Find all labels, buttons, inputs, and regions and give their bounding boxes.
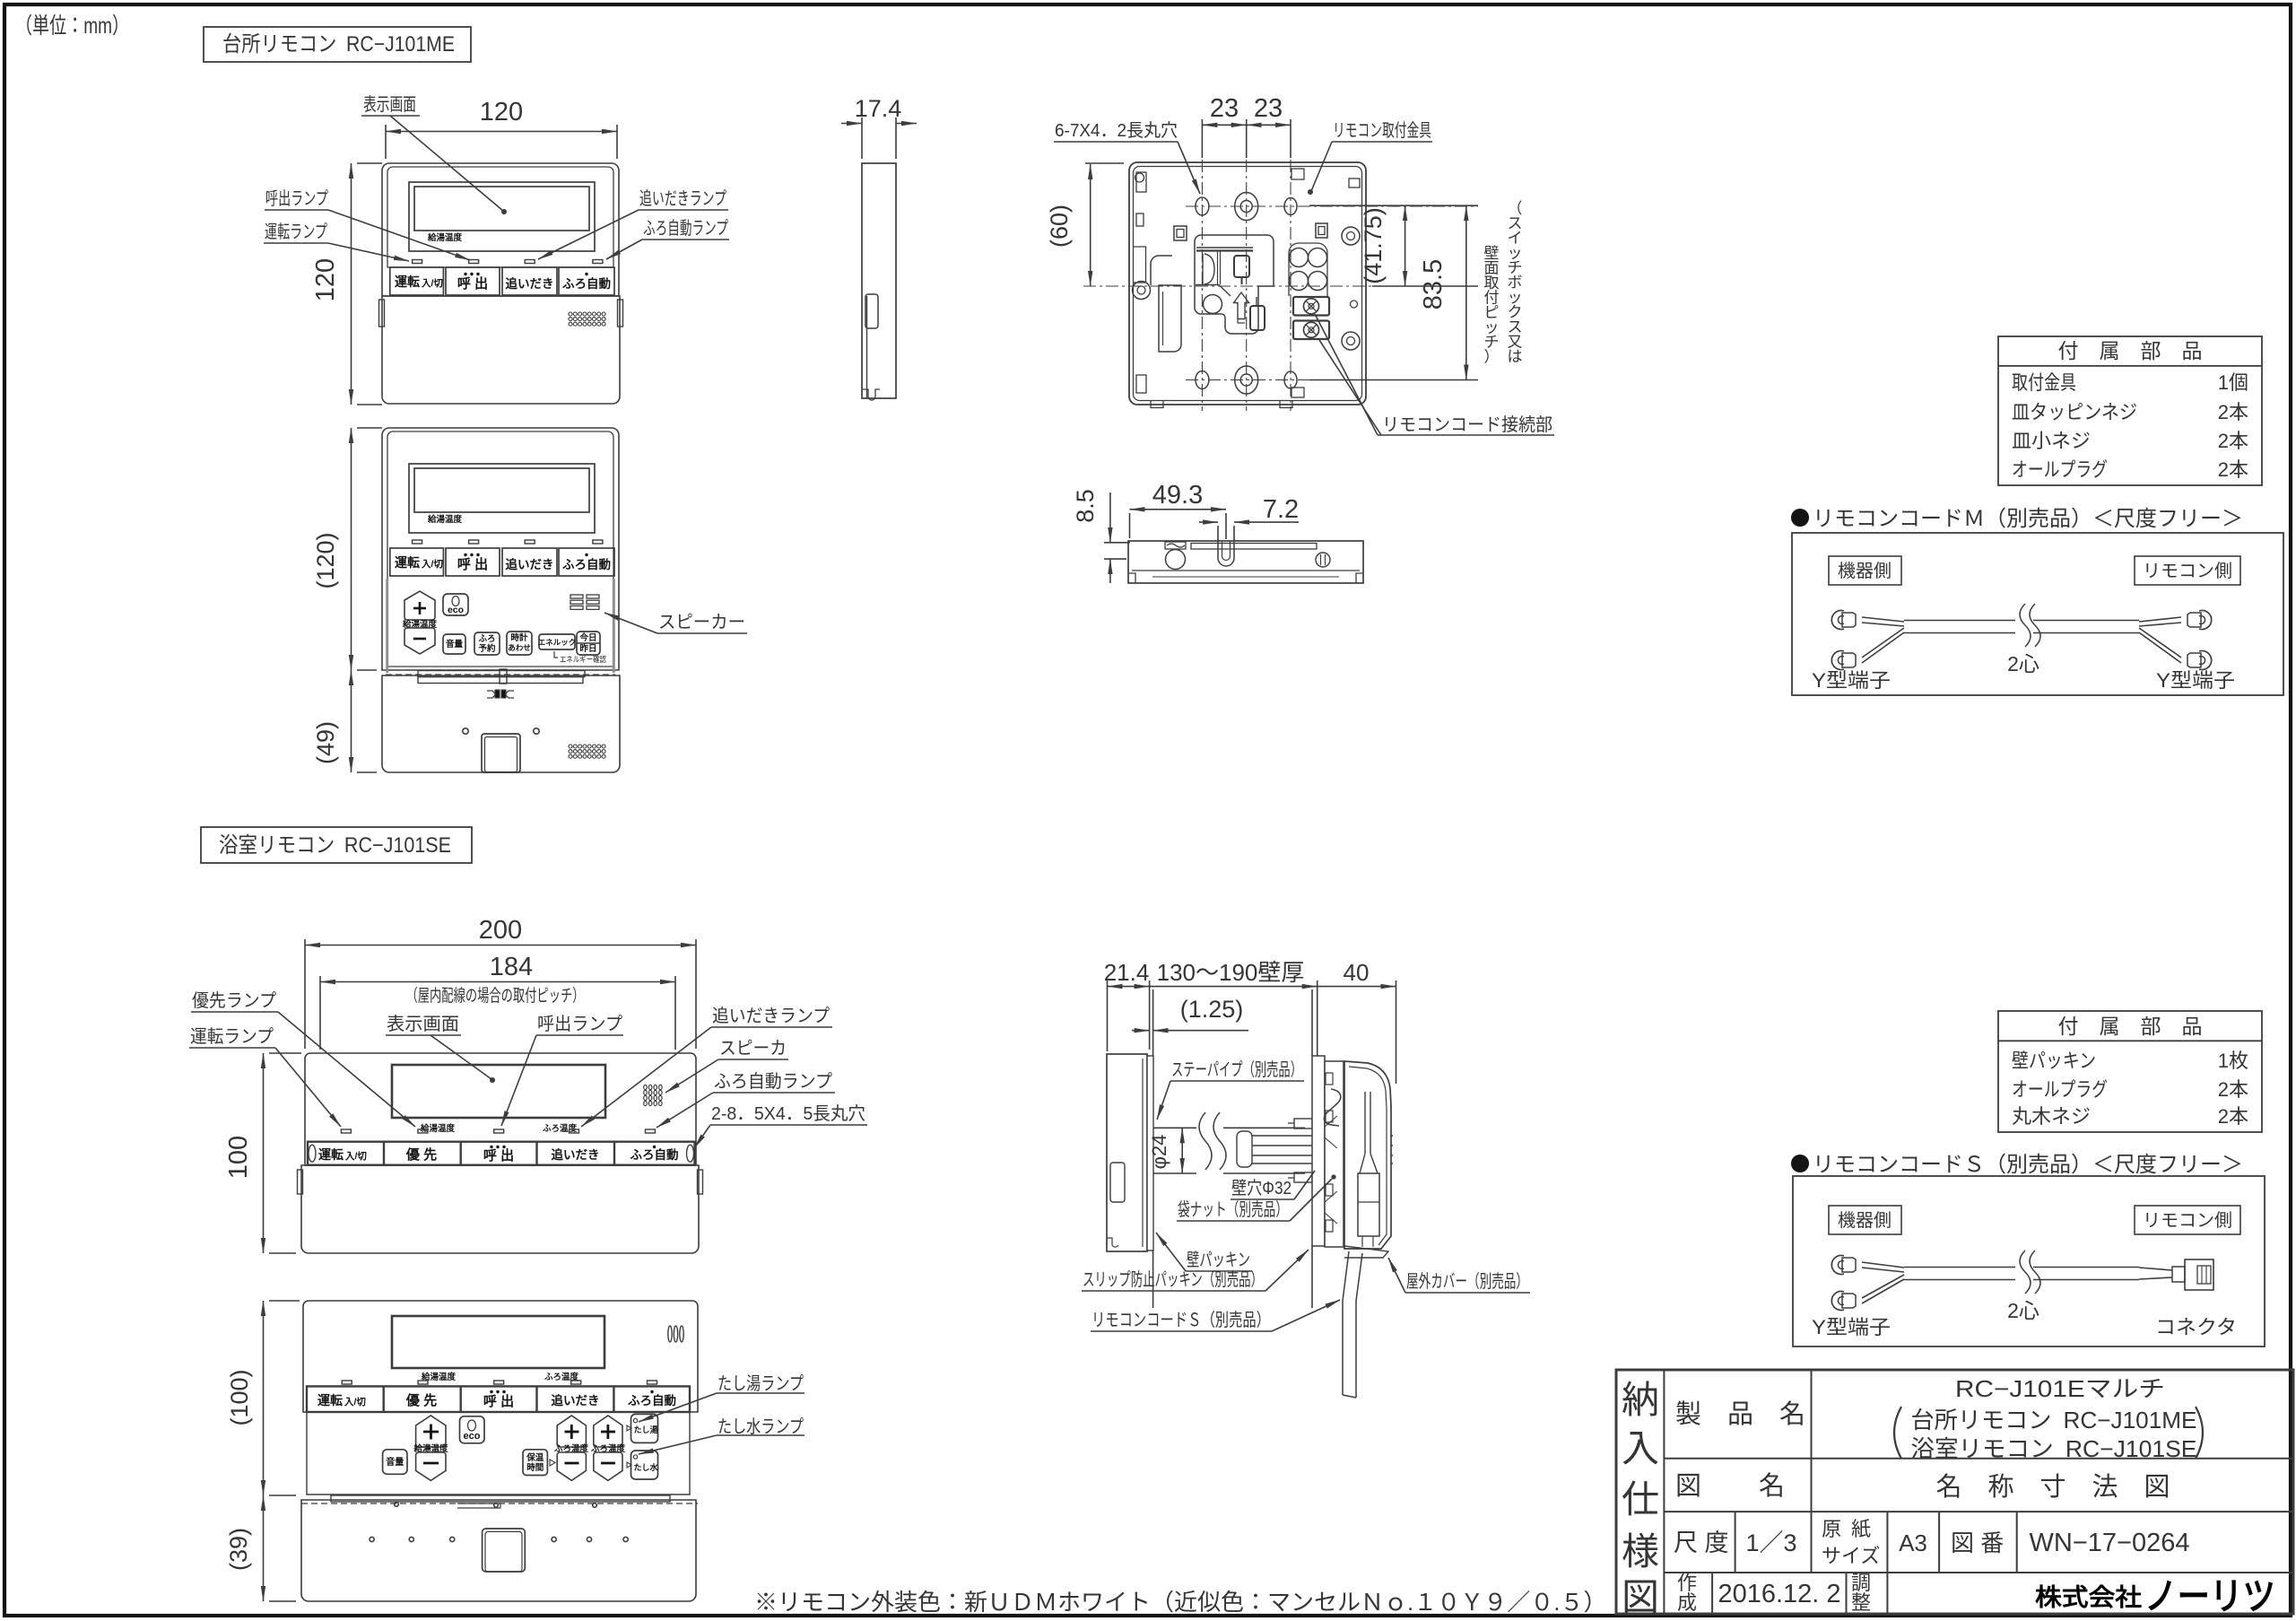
- svg-text:取付金具: 取付金具: [2012, 371, 2076, 394]
- svg-text:エネルック: エネルック: [538, 638, 577, 647]
- svg-text:エネルギー確認: エネルギー確認: [560, 655, 606, 664]
- svg-text:リモコンコード接続部: リモコンコード接続部: [1382, 414, 1552, 435]
- svg-text:ふろ自動ランプ: ふろ自動ランプ: [714, 1071, 832, 1092]
- svg-text:付 属 部 品: 付 属 部 品: [2058, 339, 2203, 362]
- svg-text:2本: 2本: [2218, 1078, 2248, 1101]
- svg-text:追いだきランプ: 追いだきランプ: [712, 1006, 830, 1026]
- svg-text:120: 120: [480, 98, 523, 126]
- svg-text:図: 図: [1622, 1576, 1659, 1618]
- svg-text:納: 納: [1622, 1379, 1659, 1421]
- svg-text:23: 23: [1254, 94, 1283, 123]
- svg-text:壁パッキン: 壁パッキン: [2012, 1050, 2096, 1072]
- svg-text:たし湯: たし湯: [633, 1425, 657, 1434]
- svg-text:スピーカ: スピーカ: [719, 1039, 787, 1059]
- svg-text:リモコンコードＳ（別売品）: リモコンコードＳ（別売品）: [1091, 1310, 1270, 1330]
- svg-text:2本: 2本: [2218, 430, 2248, 452]
- svg-text:Y型端子: Y型端子: [1812, 669, 1891, 692]
- svg-text:運転ランプ: 運転ランプ: [190, 1026, 274, 1047]
- svg-text:6-7X4．2長丸穴: 6-7X4．2長丸穴: [1055, 120, 1178, 141]
- svg-text:表示画面: 表示画面: [363, 94, 416, 115]
- svg-text:eco: eco: [464, 1431, 481, 1442]
- svg-text:株式会社: 株式会社: [2035, 1584, 2142, 1611]
- svg-text:皿タッピンネジ: 皿タッピンネジ: [2012, 401, 2137, 423]
- svg-text:たし水: たし水: [633, 1462, 658, 1472]
- svg-text:ふろ自動: ふろ自動: [631, 1147, 679, 1162]
- svg-text:スピーカー: スピーカー: [658, 613, 745, 632]
- svg-text:製 品 名: 製 品 名: [1675, 1399, 1805, 1429]
- svg-text:運転: 運転: [317, 1393, 343, 1407]
- svg-text:音量: 音量: [446, 639, 464, 649]
- svg-text:丸木ネジ: 丸木ネジ: [2012, 1105, 2091, 1128]
- svg-text:たし湯ランプ: たし湯ランプ: [717, 1373, 804, 1394]
- svg-text:オールプラグ: オールプラグ: [2012, 1078, 2108, 1101]
- svg-text:優 先: 優 先: [405, 1392, 437, 1408]
- svg-text:呼 出: 呼 出: [457, 556, 488, 572]
- svg-text:リモコンコードＭ（別売品）＜尺度フリー＞: リモコンコードＭ（別売品）＜尺度フリー＞: [1813, 507, 2243, 531]
- svg-text:名: 名: [1759, 1471, 1785, 1501]
- svg-text:呼出ランプ: 呼出ランプ: [265, 188, 328, 209]
- svg-text:ふろ自動ランプ: ふろ自動ランプ: [643, 218, 728, 239]
- svg-text:保温: 保温: [526, 1452, 544, 1463]
- svg-text:184: 184: [490, 953, 533, 981]
- svg-text:追いだきランプ: 追いだきランプ: [639, 188, 726, 209]
- svg-text:追いだき: 追いだき: [506, 276, 554, 291]
- svg-text:機器側: 機器側: [1838, 561, 1892, 581]
- svg-text:(1.25): (1.25): [1180, 996, 1244, 1023]
- svg-text:リモコンコードＳ（別売品）＜尺度フリー＞: リモコンコードＳ（別売品）＜尺度フリー＞: [1813, 1153, 2243, 1177]
- svg-text:追いだき: 追いだき: [552, 1147, 600, 1162]
- svg-text:7.2: 7.2: [1263, 495, 1299, 524]
- svg-text:様: 様: [1622, 1530, 1659, 1573]
- svg-text:サイズ: サイズ: [1822, 1545, 1880, 1567]
- svg-text:120: 120: [311, 258, 340, 301]
- svg-text:49.3: 49.3: [1152, 481, 1203, 510]
- svg-text:100: 100: [224, 1136, 253, 1179]
- svg-text:壁穴Φ32: 壁穴Φ32: [1231, 1178, 1291, 1198]
- svg-text:40: 40: [1344, 959, 1370, 986]
- svg-text:屋外カバー（別売品）: 屋外カバー（別売品）: [1406, 1271, 1528, 1292]
- svg-text:は: は: [1508, 348, 1523, 365]
- svg-text:音量: 音量: [386, 1456, 404, 1468]
- svg-text:200: 200: [479, 916, 522, 945]
- svg-text:(60): (60): [1046, 205, 1073, 248]
- svg-text:運転ランプ: 運転ランプ: [265, 222, 327, 242]
- svg-text:入/切: 入/切: [344, 1397, 366, 1407]
- svg-text:たし水ランプ: たし水ランプ: [717, 1416, 804, 1437]
- svg-text:入/切: 入/切: [344, 1151, 367, 1162]
- svg-text:ふろ自動: ふろ自動: [562, 557, 611, 571]
- svg-text:2心: 2心: [2007, 1299, 2039, 1322]
- svg-text:原 紙: 原 紙: [1822, 1518, 1871, 1540]
- svg-text:入/切: 入/切: [421, 559, 443, 570]
- svg-text:優 先: 優 先: [405, 1146, 437, 1163]
- svg-text:(100): (100): [226, 1369, 253, 1425]
- svg-text:RC−J101Eマルチ: RC−J101Eマルチ: [1955, 1375, 2165, 1402]
- svg-text:130～190壁厚: 130～190壁厚: [1157, 959, 1305, 986]
- svg-text:リモコン側: リモコン側: [2143, 561, 2232, 581]
- svg-text:仕: 仕: [1622, 1478, 1659, 1521]
- svg-text:φ24: φ24: [1148, 1135, 1170, 1170]
- svg-text:予約: 予約: [478, 643, 496, 654]
- svg-text:スリップ防止パッキン（別売品）: スリップ防止パッキン（別売品）: [1083, 1269, 1263, 1290]
- svg-text:2本: 2本: [2218, 1105, 2248, 1128]
- svg-text:呼 出: 呼 出: [483, 1147, 514, 1163]
- svg-text:1／3: 1／3: [1745, 1529, 1796, 1556]
- svg-text:昨日: 昨日: [579, 643, 596, 654]
- svg-text:入: 入: [1622, 1427, 1659, 1469]
- svg-text:台所リモコン RC−J101ME: 台所リモコン RC−J101ME: [222, 32, 455, 57]
- svg-text:※リモコン外装色：新ＵＤＭホワイト（近似色：マンセルＮｏ.１: ※リモコン外装色：新ＵＤＭホワイト（近似色：マンセルＮｏ.１０Ｙ９／０.５）: [754, 1589, 1606, 1616]
- svg-text:WN−17−0264: WN−17−0264: [2030, 1529, 2190, 1557]
- svg-text:リモコン取付金具: リモコン取付金具: [1333, 120, 1431, 141]
- svg-text:2016.12. 2: 2016.12. 2: [1718, 1580, 1840, 1608]
- svg-text:）: ）: [1484, 349, 1500, 366]
- svg-text:整: 整: [1851, 1591, 1871, 1614]
- svg-text:成: 成: [1677, 1591, 1697, 1614]
- svg-text:ノーリツ: ノーリツ: [2144, 1575, 2275, 1617]
- svg-text:23: 23: [1210, 94, 1239, 123]
- svg-text:入/切: 入/切: [421, 278, 443, 289]
- svg-text:運転: 運転: [395, 275, 420, 289]
- svg-text:ふろ温度: ふろ温度: [543, 1123, 578, 1134]
- svg-text:(39): (39): [225, 1528, 252, 1571]
- svg-text:呼出ランプ: 呼出ランプ: [537, 1014, 622, 1034]
- svg-text:運転: 運転: [318, 1147, 344, 1162]
- svg-text:尺 度: 尺 度: [1674, 1529, 1729, 1556]
- svg-text:浴室リモコン RC−J101SE: 浴室リモコン RC−J101SE: [219, 833, 451, 858]
- svg-text:追いだき: 追いだき: [552, 1393, 600, 1407]
- svg-text:袋ナット（別売品）: 袋ナット（別売品）: [1178, 1199, 1288, 1220]
- svg-text:2本: 2本: [2218, 401, 2248, 423]
- svg-text:皿小ネジ: 皿小ネジ: [2012, 430, 2091, 452]
- svg-text:呼 出: 呼 出: [483, 1393, 514, 1409]
- svg-text:リモコン側: リモコン側: [2143, 1210, 2232, 1231]
- svg-text:給湯温度: 給湯温度: [420, 1123, 456, 1134]
- svg-text:付 属 部 品: 付 属 部 品: [2058, 1015, 2203, 1038]
- svg-text:オールプラグ: オールプラグ: [2012, 458, 2108, 481]
- svg-text:83.5: 83.5: [1419, 259, 1448, 309]
- svg-text:（屋内配線の場合の取付ピッチ）: （屋内配線の場合の取付ピッチ）: [406, 986, 585, 1006]
- svg-text:（単位：mm）: （単位：mm）: [15, 13, 129, 39]
- svg-text:浴室リモコン RC−J101SE: 浴室リモコン RC−J101SE: [1911, 1435, 2197, 1462]
- svg-text:21.4: 21.4: [1104, 959, 1150, 986]
- svg-text:あわせ: あわせ: [508, 643, 531, 652]
- svg-text:(120): (120): [312, 532, 339, 588]
- svg-text:Y型端子: Y型端子: [1812, 1316, 1891, 1338]
- svg-text:1枚: 1枚: [2218, 1050, 2248, 1072]
- svg-text:名 称 寸 法 図: 名 称 寸 法 図: [1935, 1472, 2170, 1502]
- svg-text:1個: 1個: [2218, 371, 2248, 394]
- svg-text:(41.75): (41.75): [1360, 207, 1387, 284]
- svg-text:表示画面: 表示画面: [387, 1014, 459, 1034]
- svg-text:時計: 時計: [510, 632, 528, 643]
- svg-text:ふろ: ふろ: [478, 634, 495, 644]
- svg-text:優先ランプ: 優先ランプ: [192, 990, 276, 1011]
- svg-text:時間: 時間: [526, 1462, 544, 1473]
- svg-text:運転: 運転: [395, 555, 420, 570]
- svg-text:eco: eco: [448, 605, 464, 615]
- svg-text:機器側: 機器側: [1838, 1210, 1892, 1231]
- svg-text:追いだき: 追いだき: [506, 557, 554, 571]
- svg-text:2-8．5X4．5長丸穴: 2-8．5X4．5長丸穴: [711, 1103, 865, 1124]
- svg-text:給湯温度: 給湯温度: [427, 232, 463, 243]
- svg-text:コネクタ: コネクタ: [2155, 1316, 2237, 1338]
- svg-text:今日: 今日: [579, 632, 596, 643]
- svg-text:ステーパイプ（別売品）: ステーパイプ（別売品）: [1171, 1059, 1302, 1080]
- svg-text:壁パッキン: 壁パッキン: [1187, 1250, 1250, 1270]
- svg-text:ふろ自動: ふろ自動: [562, 276, 611, 291]
- svg-text:ふろ自動: ふろ自動: [628, 1393, 676, 1407]
- svg-text:A3: A3: [1899, 1529, 1927, 1556]
- svg-text:2本: 2本: [2218, 458, 2248, 481]
- svg-text:Y型端子: Y型端子: [2156, 669, 2235, 692]
- svg-text:呼 出: 呼 出: [457, 275, 488, 292]
- svg-text:2心: 2心: [2007, 652, 2039, 675]
- svg-text:8.5: 8.5: [1072, 489, 1099, 523]
- svg-text:(49): (49): [312, 721, 339, 764]
- svg-text:図 番: 図 番: [1951, 1529, 2004, 1556]
- svg-text:給湯温度: 給湯温度: [427, 514, 463, 525]
- svg-text:図: 図: [1675, 1472, 1701, 1501]
- svg-text:台所リモコン RC−J101ME: 台所リモコン RC−J101ME: [1911, 1407, 2197, 1434]
